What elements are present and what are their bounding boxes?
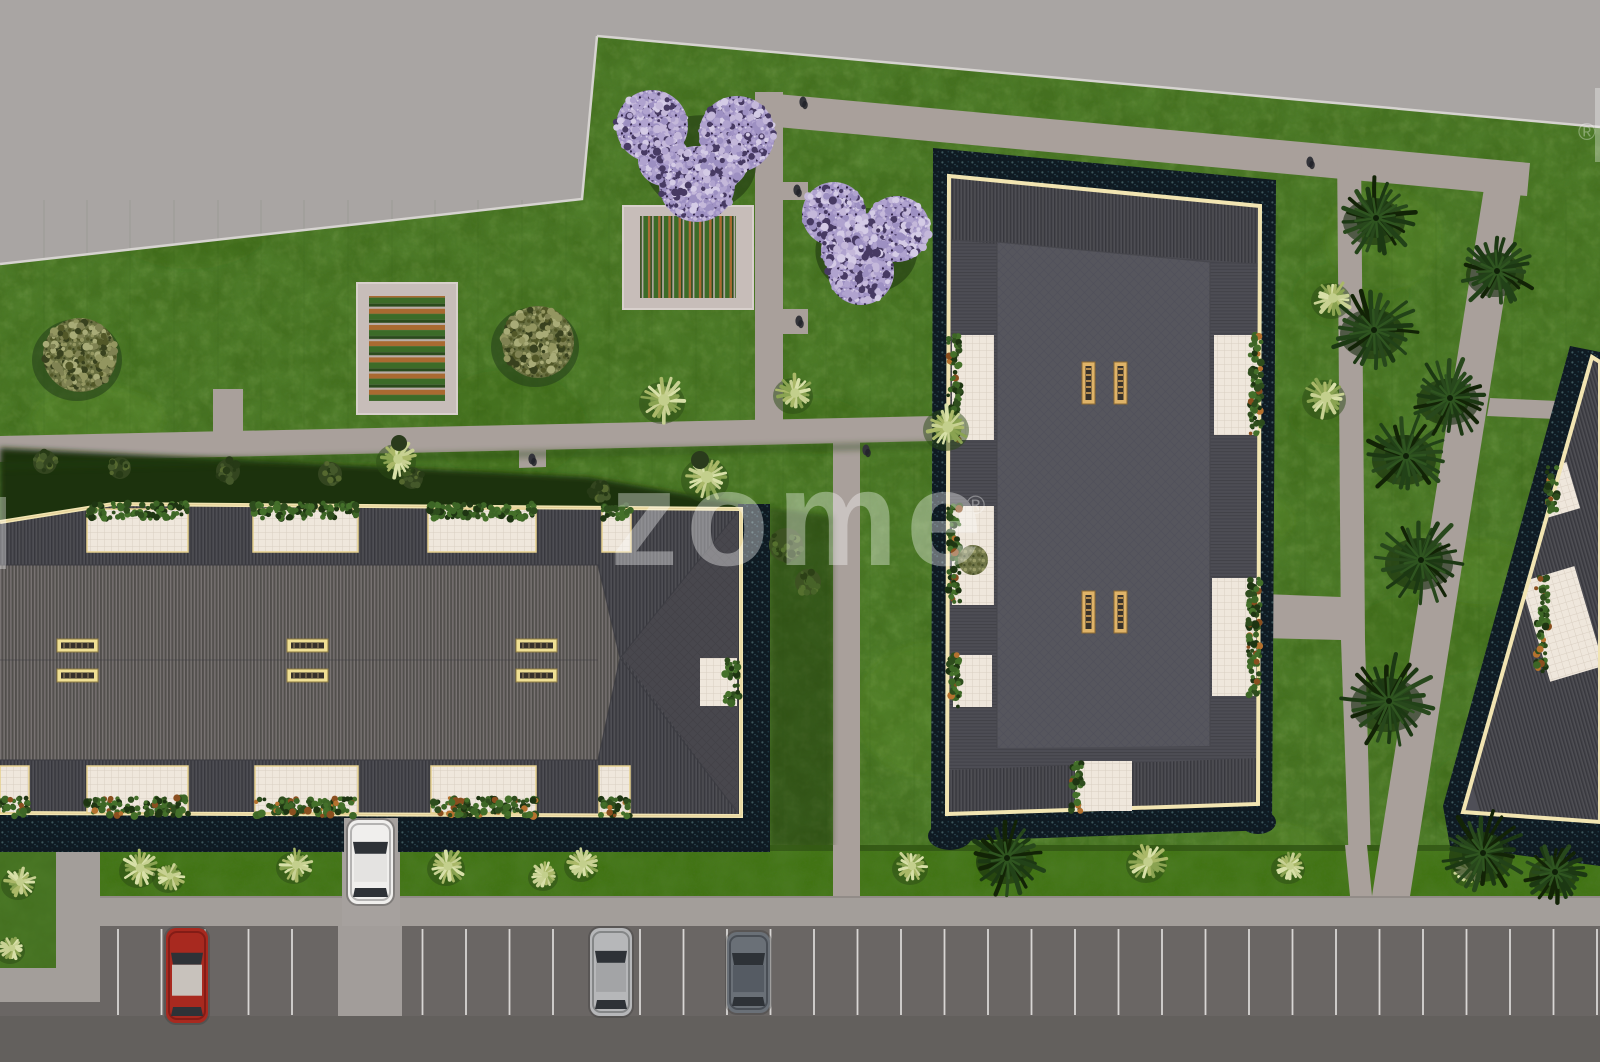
svg-text:®: ® (1578, 119, 1596, 146)
svg-text:zome: zome (610, 442, 990, 594)
svg-text:®: ® (966, 490, 985, 520)
